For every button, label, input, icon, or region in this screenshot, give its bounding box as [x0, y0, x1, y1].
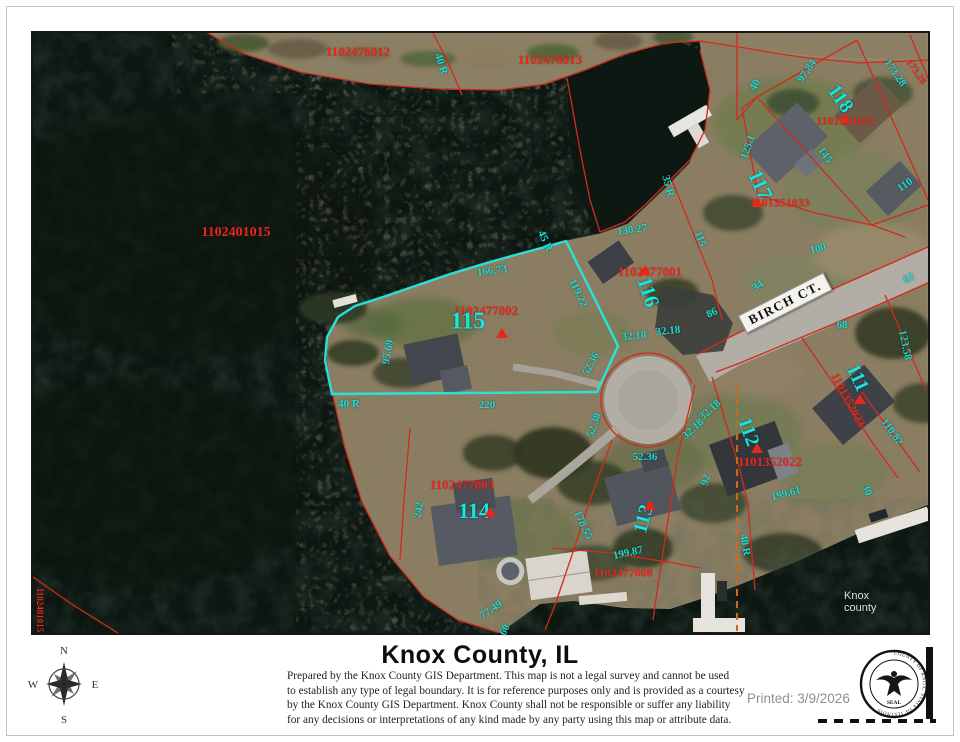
seal-border-bar — [926, 647, 933, 719]
parcel-id-label: 1101352022 — [738, 454, 802, 470]
dimension-label: 52.38 — [584, 411, 603, 438]
dimension-label: 62 — [901, 270, 917, 286]
parcel-point-marker — [644, 500, 656, 510]
disclaimer-text: Prepared by the Knox County GIS Departme… — [287, 669, 745, 727]
dimension-label: 30 — [859, 483, 874, 497]
dimension-label: 166.73 — [476, 263, 508, 279]
knox-county-watermark: Knox county — [844, 590, 900, 614]
dimension-label: 199.61 — [770, 484, 802, 503]
parcel-id-label: 1102476012 — [326, 44, 390, 60]
parcel-point-marker — [751, 443, 763, 453]
dimension-label: 242 — [412, 501, 427, 519]
dimension-label: 220 — [479, 399, 496, 411]
dimension-label: 110.82 — [879, 416, 906, 447]
gis-print-page: 1102476012110247601311024010151102477002… — [0, 0, 960, 742]
dimension-label: 178.55 — [571, 509, 595, 541]
dimension-label: 115 — [691, 229, 708, 248]
dimension-label: 68 — [837, 319, 848, 331]
map-title: Knox County, IL — [0, 641, 960, 670]
map-area: 1102476012110247601311024010151102477002… — [31, 31, 930, 635]
dimension-label: 95.69 — [380, 339, 396, 365]
dimension-label: 92 — [699, 473, 713, 487]
footer: N S W E Knox County, IL Prepared by the … — [0, 633, 960, 742]
parcel-point-marker — [839, 113, 851, 123]
map-label-layer: 1102476012110247601311024010151102477002… — [33, 33, 928, 633]
parcel-id-label: 1102477008 — [593, 566, 652, 581]
dimension-label: 40 R — [737, 533, 753, 556]
parcel-point-marker — [751, 197, 763, 207]
seal-label: SEAL — [887, 700, 902, 706]
dimension-label: 130.27 — [616, 222, 648, 238]
parcel-point-marker — [496, 328, 508, 338]
dimension-label: 32.18 — [621, 329, 647, 344]
parcel-id-label: 1102401015 — [201, 225, 270, 241]
dimension-label: 86 — [704, 305, 719, 321]
dimension-label: 52.36 — [580, 350, 602, 377]
compass-s: S — [61, 714, 67, 726]
disclaimer-line: to establish any type of legal boundary.… — [287, 684, 745, 699]
dimension-label: 45 R — [535, 229, 555, 254]
printed-date: Printed: 3/9/2026 — [747, 691, 850, 706]
parcel-id-label: 1102477003 — [430, 477, 494, 493]
dimension-label: 40 — [747, 77, 763, 93]
dimension-label: 40 R — [338, 398, 360, 410]
dimension-label: 32.18 — [655, 324, 681, 339]
dimension-label: 199.87 — [612, 544, 644, 562]
parcel-point-marker — [484, 507, 496, 517]
dimension-label: 35 R — [659, 174, 676, 198]
lot-number-label: 118 — [822, 81, 857, 118]
dimension-label: 110 — [895, 176, 915, 195]
county-seal-icon: COUNTY OF KNOX, STATE OF ILLINOIS SEAL — [856, 646, 932, 722]
dimension-label: 123.58 — [896, 329, 914, 361]
disclaimer-line: Prepared by the Knox County GIS Departme… — [287, 669, 745, 684]
dimension-label: 40 R — [432, 52, 450, 76]
dimension-label: 32.18 — [680, 416, 706, 441]
compass-e: E — [92, 679, 99, 691]
dimension-label: 125.1 — [738, 133, 758, 160]
dimension-label: 119.22 — [566, 277, 589, 309]
parcel-point-marker — [854, 394, 866, 404]
compass-w: W — [28, 679, 39, 691]
parcel-point-marker — [639, 265, 651, 275]
parcel-id-label: 1102476013 — [518, 52, 582, 68]
dimension-label: 52.36 — [633, 451, 658, 463]
dimension-label: 34 — [750, 278, 766, 294]
dimension-label: 145 — [815, 145, 834, 165]
parcel-id-label: 1102401015 — [35, 588, 45, 633]
seal-dashed-border — [818, 719, 936, 723]
dimension-label: 97.84 — [795, 57, 819, 84]
disclaimer-line: by the Knox County GIS Department. Knox … — [287, 698, 745, 713]
dimension-label: 100 — [808, 241, 827, 257]
lot-number-label: 115 — [451, 309, 486, 336]
dimension-label: 77.49 — [477, 598, 504, 622]
disclaimer-line: for any decisions or interpretations of … — [287, 713, 745, 728]
